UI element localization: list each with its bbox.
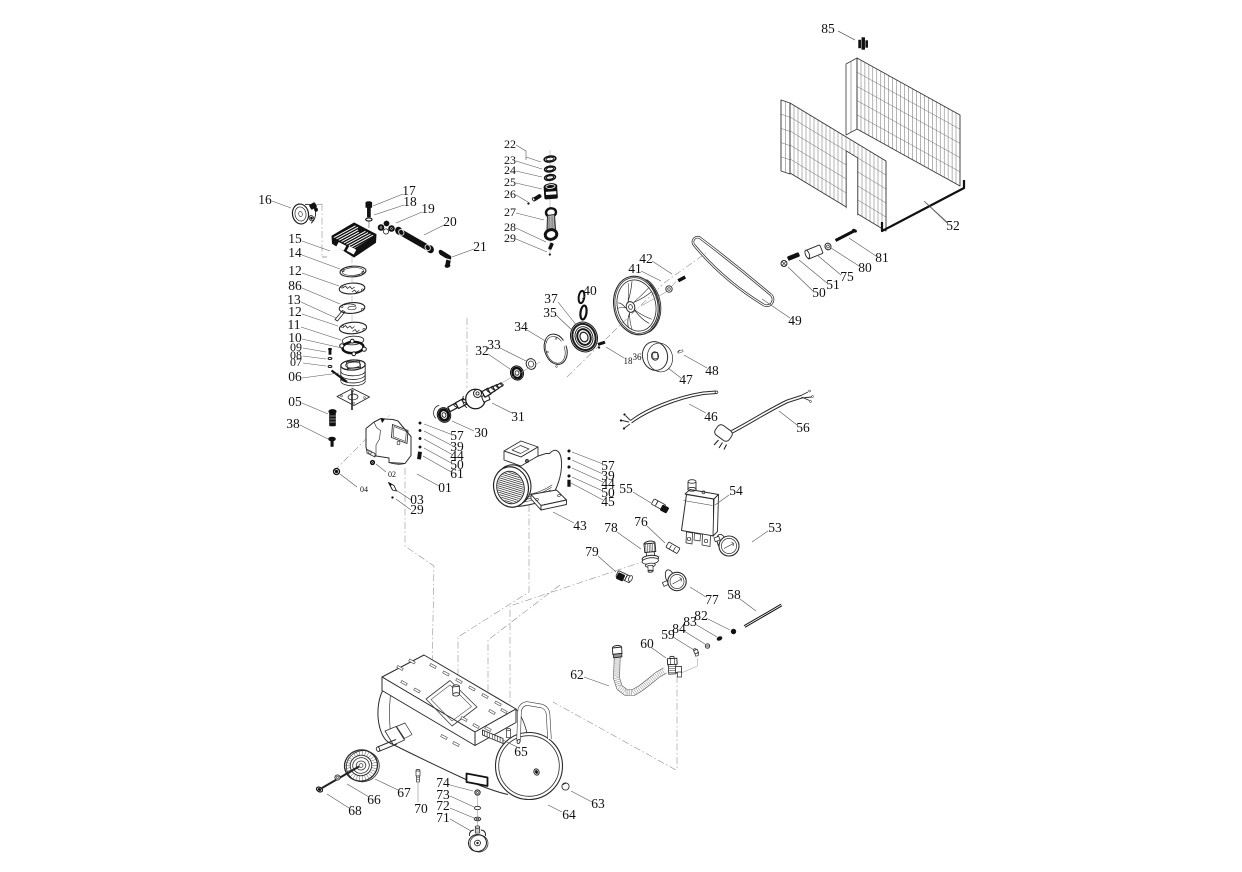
svg-text:55: 55 — [619, 481, 633, 496]
svg-text:16: 16 — [258, 192, 272, 207]
svg-text:19: 19 — [421, 201, 435, 216]
svg-text:37: 37 — [544, 291, 558, 306]
svg-text:60: 60 — [640, 636, 654, 651]
svg-text:56: 56 — [796, 420, 810, 435]
svg-text:40: 40 — [583, 283, 597, 298]
svg-text:50: 50 — [812, 285, 826, 300]
svg-text:68: 68 — [348, 803, 362, 818]
svg-text:54: 54 — [729, 483, 743, 498]
svg-text:67: 67 — [397, 785, 411, 800]
svg-text:61: 61 — [450, 466, 464, 481]
svg-text:64: 64 — [562, 807, 576, 822]
svg-text:86: 86 — [288, 278, 302, 293]
svg-text:30: 30 — [474, 425, 488, 440]
svg-text:43: 43 — [573, 518, 587, 533]
svg-text:51: 51 — [826, 277, 840, 292]
svg-text:49: 49 — [788, 313, 802, 328]
svg-text:53: 53 — [768, 520, 782, 535]
svg-text:29: 29 — [504, 231, 516, 245]
svg-text:36: 36 — [633, 352, 643, 362]
svg-text:27: 27 — [504, 205, 516, 219]
svg-text:07: 07 — [290, 355, 302, 369]
svg-text:01: 01 — [438, 480, 452, 495]
svg-text:81: 81 — [875, 250, 889, 265]
svg-text:48: 48 — [705, 363, 719, 378]
svg-text:59: 59 — [661, 627, 675, 642]
svg-text:15: 15 — [288, 231, 302, 246]
svg-text:21: 21 — [473, 239, 487, 254]
svg-text:58: 58 — [727, 587, 741, 602]
svg-text:06: 06 — [288, 369, 302, 384]
svg-text:12: 12 — [288, 263, 302, 278]
svg-text:32: 32 — [475, 343, 489, 358]
svg-text:76: 76 — [634, 514, 648, 529]
svg-text:14: 14 — [288, 245, 302, 260]
svg-text:04: 04 — [360, 485, 368, 494]
svg-text:05: 05 — [288, 394, 302, 409]
svg-text:65: 65 — [514, 744, 528, 759]
svg-text:78: 78 — [604, 520, 618, 535]
svg-text:31: 31 — [511, 409, 525, 424]
svg-text:46: 46 — [704, 409, 718, 424]
svg-text:33: 33 — [487, 337, 501, 352]
svg-text:85: 85 — [821, 21, 835, 36]
svg-text:77: 77 — [705, 592, 719, 607]
svg-text:34: 34 — [514, 319, 528, 334]
svg-text:41: 41 — [628, 261, 642, 276]
svg-text:63: 63 — [591, 796, 605, 811]
svg-text:45: 45 — [601, 494, 615, 509]
svg-text:75: 75 — [840, 269, 854, 284]
svg-text:26: 26 — [504, 187, 516, 201]
svg-text:18: 18 — [403, 194, 417, 209]
svg-text:71: 71 — [436, 810, 450, 825]
svg-text:02: 02 — [388, 470, 396, 479]
svg-text:47: 47 — [679, 372, 693, 387]
svg-text:80: 80 — [858, 260, 872, 275]
svg-text:20: 20 — [443, 214, 457, 229]
svg-text:52: 52 — [946, 218, 960, 233]
svg-text:66: 66 — [367, 792, 381, 807]
svg-text:22: 22 — [504, 137, 516, 151]
svg-text:38: 38 — [286, 416, 300, 431]
svg-text:70: 70 — [414, 801, 428, 816]
svg-text:62: 62 — [570, 667, 584, 682]
svg-text:29: 29 — [410, 502, 424, 517]
svg-text:35: 35 — [543, 305, 557, 320]
svg-text:79: 79 — [585, 544, 599, 559]
